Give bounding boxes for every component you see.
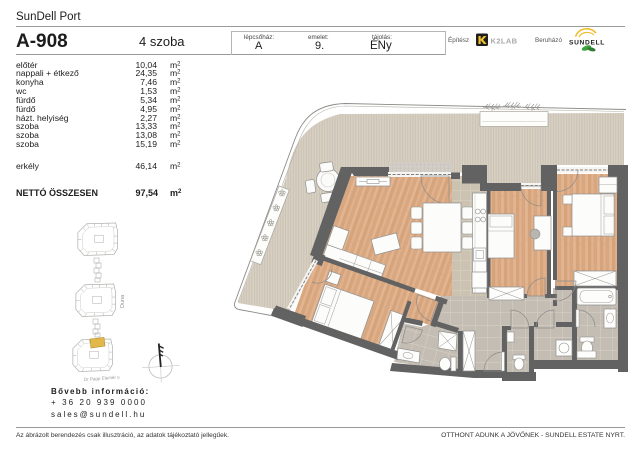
svg-text:Duna: Duna [120,294,126,308]
svg-text:SUNDELL: SUNDELL [569,40,605,47]
svg-text:Dr Papp Elemér u: Dr Papp Elemér u [84,374,121,382]
svg-text:K2LAB: K2LAB [491,37,518,46]
